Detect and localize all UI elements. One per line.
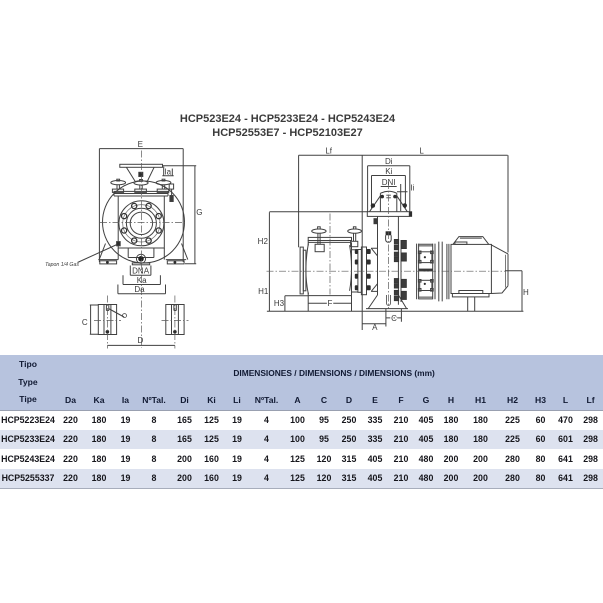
svg-text:C: C bbox=[82, 318, 88, 327]
svg-text:E: E bbox=[138, 140, 143, 149]
svg-text:Ii: Ii bbox=[410, 184, 414, 193]
svg-text:Tapon 1/4 Gas: Tapon 1/4 Gas bbox=[45, 262, 79, 268]
svg-text:Ka: Ka bbox=[137, 276, 147, 285]
svg-text:H2: H2 bbox=[258, 237, 269, 246]
svg-text:DNI: DNI bbox=[382, 178, 396, 187]
svg-text:H3: H3 bbox=[274, 299, 285, 308]
svg-text:Da: Da bbox=[134, 285, 145, 294]
svg-text:A: A bbox=[372, 323, 378, 332]
svg-text:D: D bbox=[138, 336, 144, 345]
svg-text:DNA: DNA bbox=[132, 266, 150, 275]
svg-text:Di: Di bbox=[385, 157, 393, 166]
svg-text:F: F bbox=[328, 299, 333, 308]
svg-text:Ia: Ia bbox=[164, 168, 171, 177]
svg-text:G: G bbox=[196, 208, 202, 217]
svg-text:Ki: Ki bbox=[385, 167, 392, 176]
svg-text:C: C bbox=[391, 314, 397, 323]
svg-text:H1: H1 bbox=[258, 287, 269, 296]
svg-text:L: L bbox=[419, 147, 424, 156]
svg-text:Lf: Lf bbox=[325, 147, 332, 156]
svg-text:H: H bbox=[523, 288, 529, 297]
